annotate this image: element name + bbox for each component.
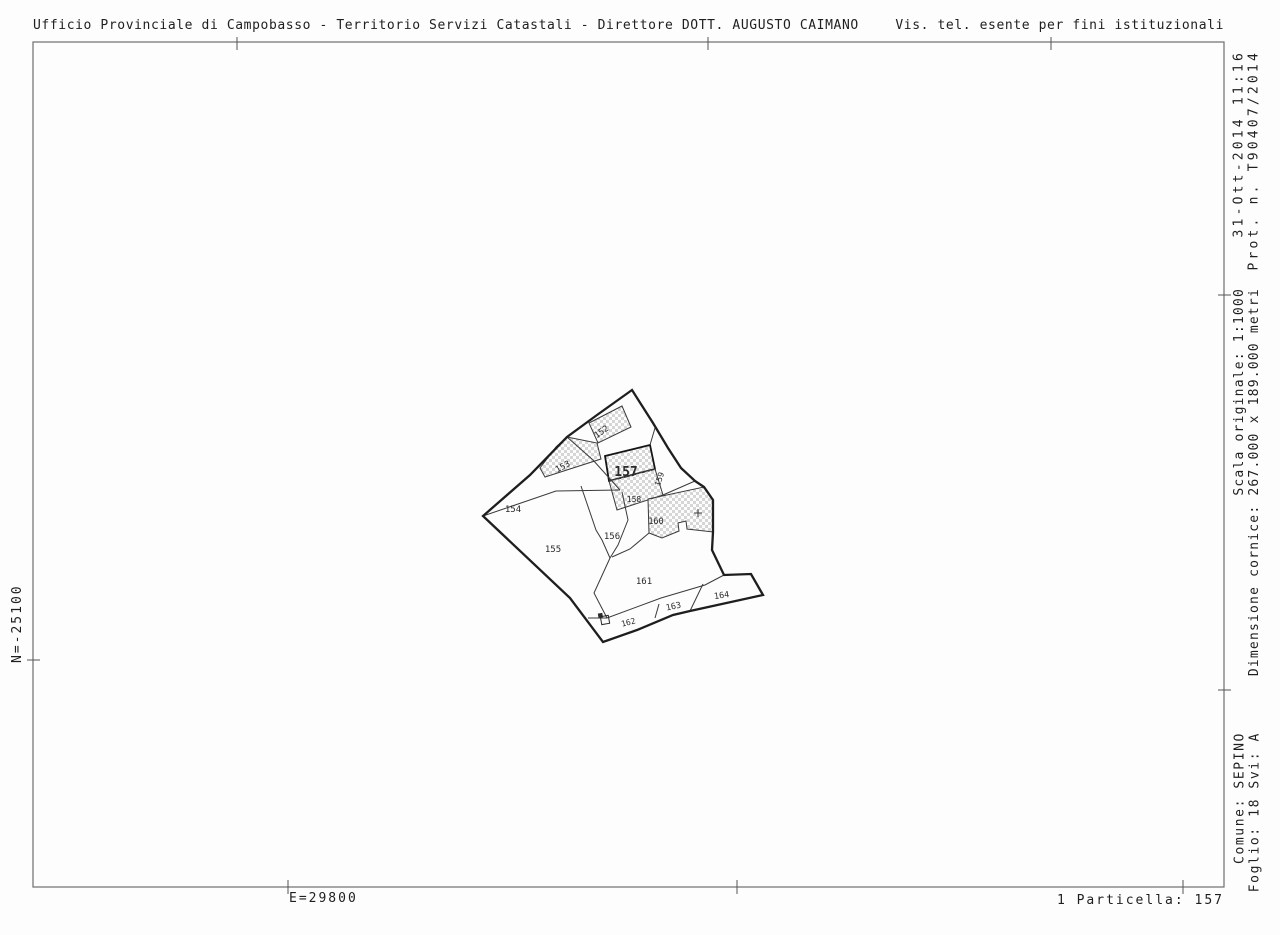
- parcel-158-label: 158: [627, 495, 642, 504]
- foglio-number: Foglio: 18 Svi: A: [1247, 732, 1262, 892]
- scale-block: Scala originale: 1:1000 Dimensione corni…: [1232, 288, 1262, 676]
- parcel-160-label: 160: [648, 517, 663, 527]
- parcel-162-label: 162: [620, 616, 636, 628]
- parcel-163-label: 163: [665, 601, 682, 614]
- parcel-155-label: 155: [545, 545, 561, 555]
- parcel-156-label: 156: [604, 532, 620, 542]
- scale-original: Scala originale: 1:1000: [1232, 288, 1247, 676]
- parcel-161-label: 161: [636, 577, 652, 587]
- comune-block: Comune: SEPINO Foglio: 18 Svi: A: [1232, 732, 1262, 892]
- east-coordinate: E=29800: [289, 891, 358, 906]
- map-canvas: 152 153 154 155 156 157 158 159 160 161 …: [0, 0, 1280, 935]
- cadastral-extract-page: Ufficio Provinciale di Campobasso - Terr…: [0, 0, 1280, 935]
- parcel-153-region: [540, 437, 601, 477]
- parcel-157-label: 157: [614, 465, 637, 480]
- comune-name: Comune: SEPINO: [1232, 732, 1247, 892]
- well-symbol: [598, 612, 609, 624]
- north-coordinate: N=-25100: [10, 584, 25, 663]
- protocol-date: 31-Ott-2014 11:16: [1232, 50, 1247, 271]
- parcel-164-label: 164: [713, 590, 730, 602]
- protocol-number: Prot. n. T90407/2014: [1247, 50, 1262, 271]
- protocol-block: 31-Ott-2014 11:16 Prot. n. T90407/2014: [1232, 50, 1262, 271]
- frame-dimension: Dimensione cornice: 267.000 x 189.000 me…: [1247, 288, 1262, 676]
- parcel-154-label: 154: [505, 505, 521, 515]
- particella-footer: 1 Particella: 157: [1057, 893, 1224, 908]
